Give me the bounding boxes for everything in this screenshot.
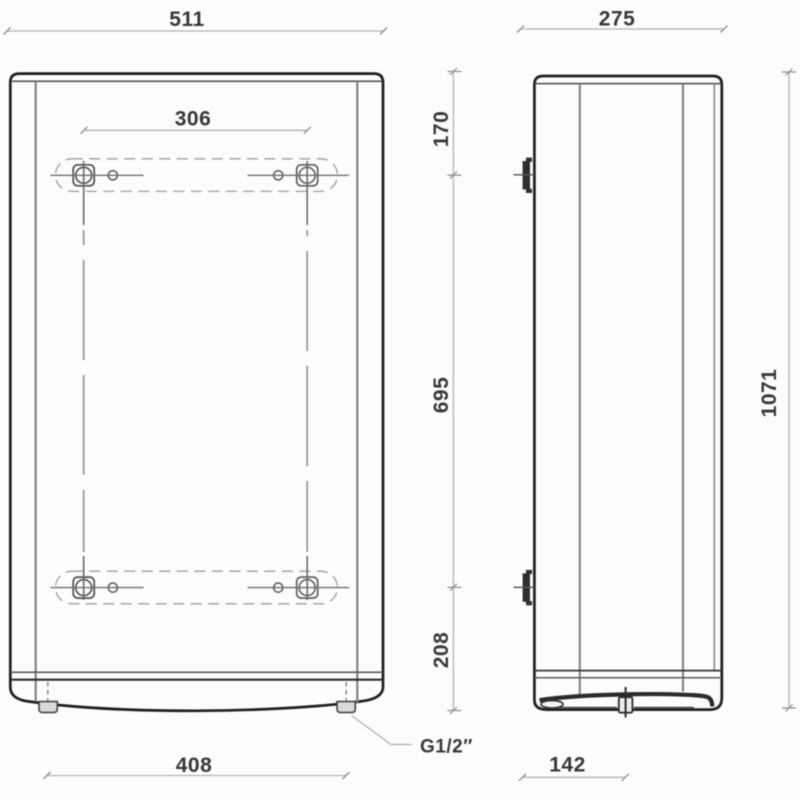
svg-text:170: 170: [430, 111, 453, 148]
svg-text:306: 306: [175, 108, 212, 131]
svg-text:408: 408: [176, 754, 213, 777]
svg-text:G1/2″: G1/2″: [420, 737, 473, 758]
svg-text:275: 275: [599, 8, 636, 31]
svg-text:142: 142: [549, 754, 586, 777]
svg-text:1071: 1071: [758, 369, 781, 418]
svg-text:511: 511: [169, 8, 204, 31]
svg-text:208: 208: [430, 632, 453, 669]
svg-text:695: 695: [430, 377, 453, 414]
